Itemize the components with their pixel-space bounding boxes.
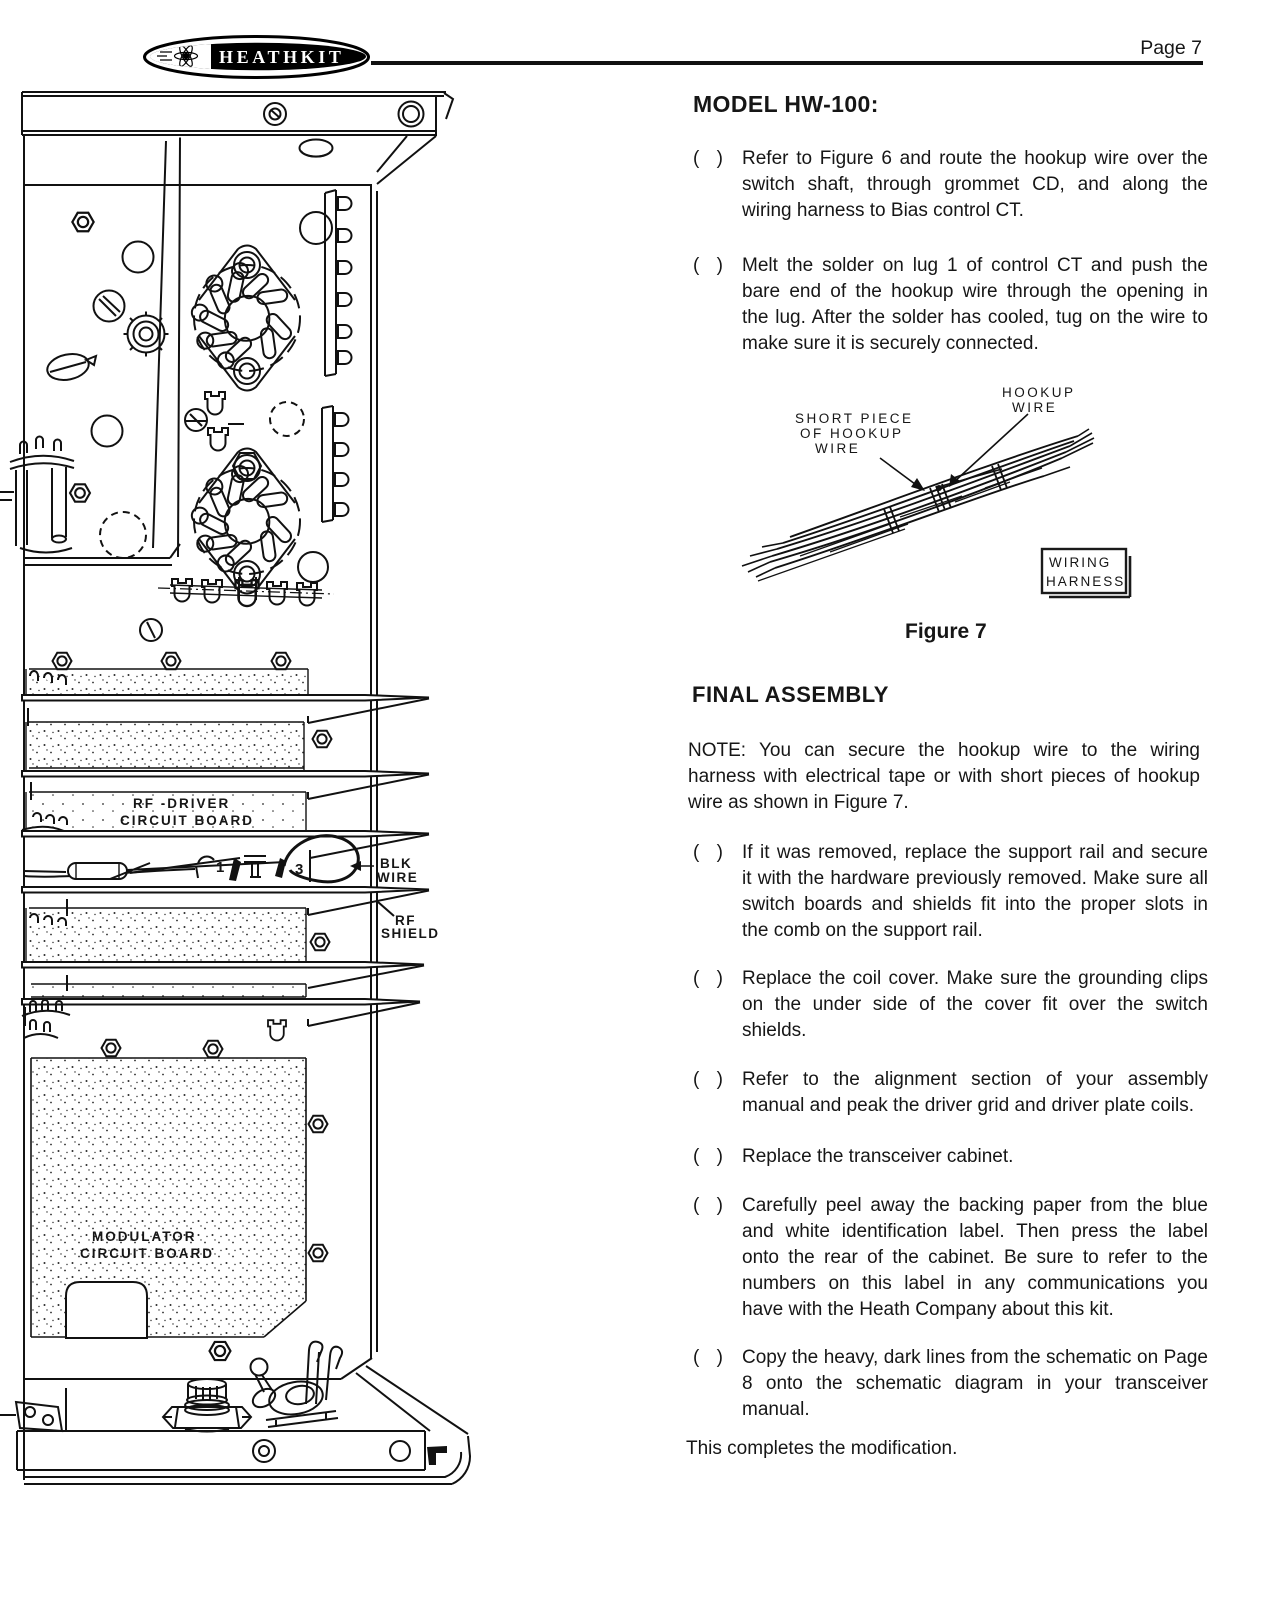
svg-text:HEATHKIT: HEATHKIT — [219, 47, 345, 67]
svg-text:WIRE: WIRE — [1012, 400, 1057, 415]
svg-text:CIRCUIT BOARD: CIRCUIT BOARD — [120, 813, 254, 828]
svg-text:WIRING: WIRING — [1049, 555, 1111, 570]
svg-text:HARNESS: HARNESS — [1046, 574, 1125, 589]
svg-text:3: 3 — [295, 861, 305, 878]
svg-text:CIRCUIT BOARD: CIRCUIT BOARD — [80, 1246, 214, 1261]
svg-text:SHORT PIECE: SHORT PIECE — [795, 411, 914, 426]
svg-text:WIRE: WIRE — [815, 441, 860, 456]
svg-text:1: 1 — [216, 859, 226, 876]
svg-text:RF -DRIVER: RF -DRIVER — [133, 796, 230, 811]
svg-text:HOOKUP: HOOKUP — [1002, 385, 1076, 400]
svg-text:MODULATOR: MODULATOR — [92, 1229, 197, 1244]
svg-text:WIRE: WIRE — [377, 870, 418, 885]
svg-text:BLK: BLK — [380, 856, 412, 871]
svg-text:OF HOOKUP: OF HOOKUP — [800, 426, 904, 441]
svg-text:SHIELD: SHIELD — [381, 926, 440, 941]
